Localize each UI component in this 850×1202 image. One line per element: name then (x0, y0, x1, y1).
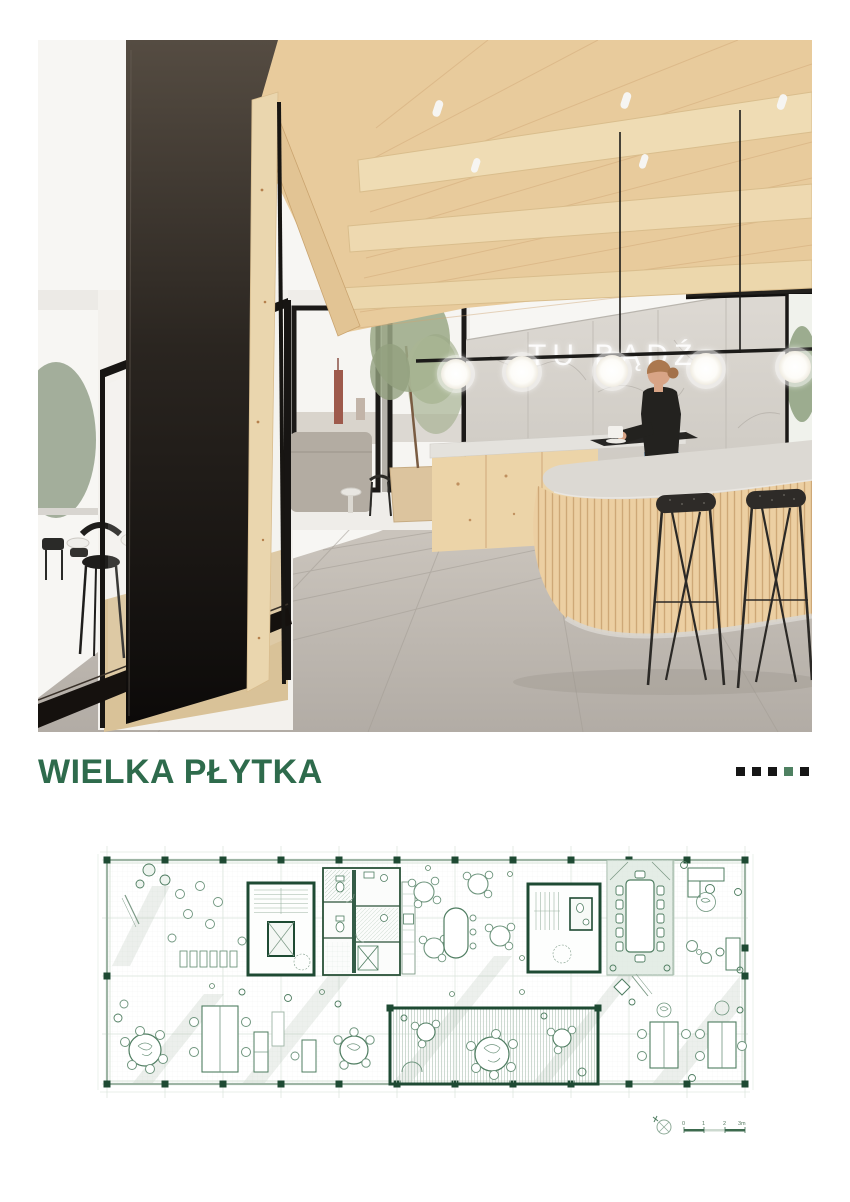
coffee-cup (608, 426, 623, 438)
deco-square (736, 767, 745, 776)
armchair (687, 941, 698, 952)
hero-rendering: TU BĄDŹ (38, 40, 812, 732)
meeting-room (607, 860, 673, 975)
scale-label: 1 (702, 1121, 705, 1127)
booth-sofa (290, 432, 372, 512)
hair-bun (668, 368, 679, 379)
cafe-island (444, 908, 468, 958)
scale-label: 0 (682, 1121, 685, 1127)
hero-photo-frame: TU BĄDŹ (38, 40, 812, 732)
deco-square-green (784, 767, 793, 776)
wc-block (323, 868, 400, 975)
meeting-table (626, 880, 654, 952)
stair-core-2 (528, 884, 600, 972)
black-tshirt (641, 387, 681, 456)
plant (143, 864, 155, 876)
scale-label: 3m (738, 1121, 746, 1127)
stool-seat (746, 488, 807, 509)
floor-plan-frame: 0 1 2 3m (92, 846, 758, 1146)
outdoor-chair (42, 538, 64, 550)
poster-page: TU BĄDŹ (0, 0, 850, 1202)
red-tower (334, 370, 343, 424)
side-table (341, 488, 361, 496)
desk (688, 868, 724, 881)
terrace (387, 1005, 602, 1085)
core-wc (570, 898, 592, 930)
scale-label: 2 (723, 1121, 726, 1127)
brand-row: WIELKA PŁYTKA (38, 748, 812, 796)
stair-core-1 (248, 883, 314, 975)
desk (302, 1040, 316, 1072)
deco-squares (736, 766, 812, 778)
logo-wielka-plytka: WIELKA PŁYTKA (38, 752, 323, 792)
stool-seat (656, 492, 717, 513)
floor-plan-drawing: 0 1 2 3m (92, 846, 758, 1146)
deco-square (752, 767, 761, 776)
deco-square (800, 767, 809, 776)
kitchenette (402, 882, 415, 974)
deco-square (768, 767, 777, 776)
desk (726, 938, 740, 970)
